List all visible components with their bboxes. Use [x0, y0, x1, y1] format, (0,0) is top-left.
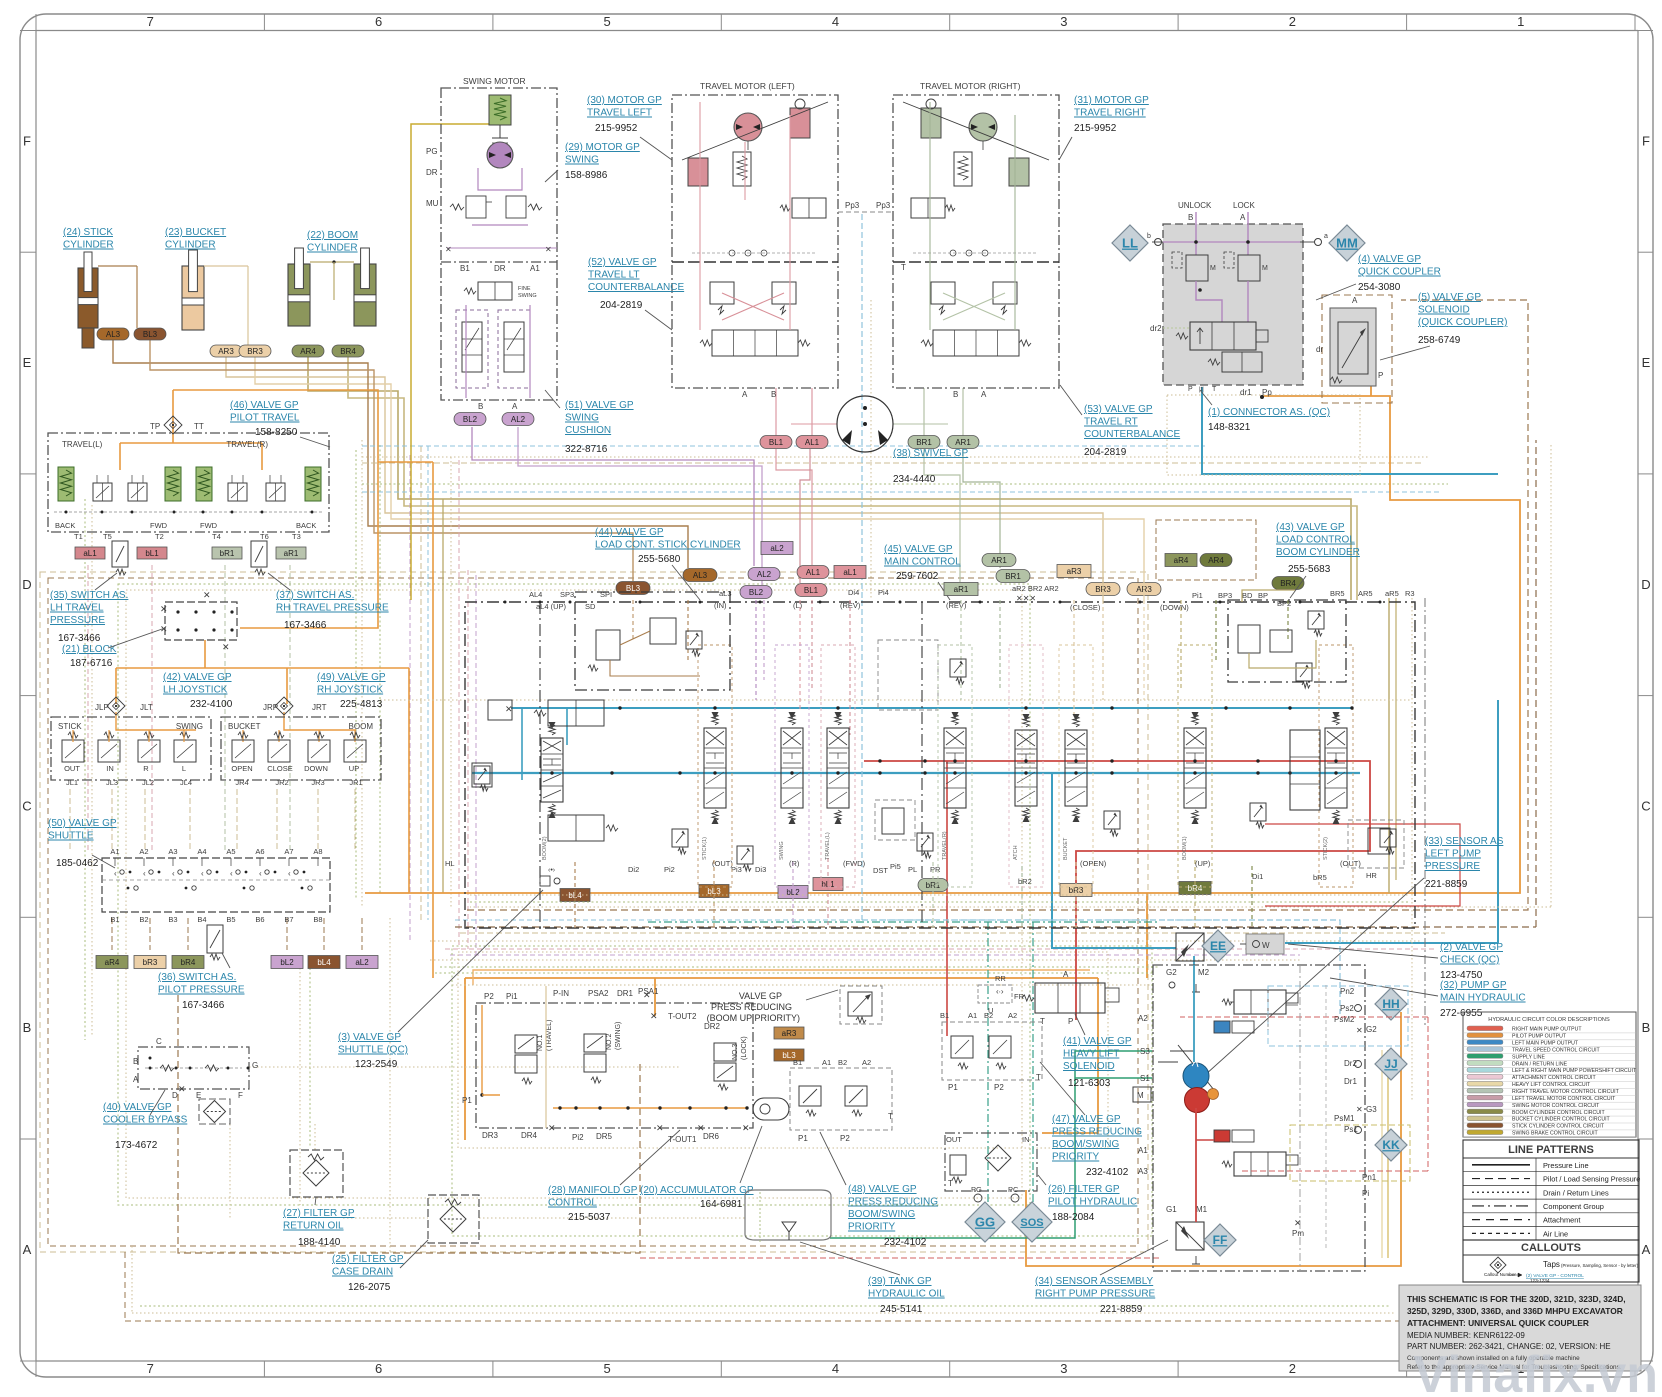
svg-text:✕: ✕ [656, 1123, 664, 1133]
svg-text:(27) FILTER GP: (27) FILTER GP [283, 1208, 355, 1219]
svg-text:RR: RR [995, 974, 1006, 983]
svg-text:F: F [23, 133, 31, 148]
svg-text:204-2819: 204-2819 [600, 300, 643, 311]
svg-text:P: P [1188, 386, 1193, 393]
svg-text:(3) VALVE GP: (3) VALVE GP [338, 1032, 401, 1043]
svg-text:LL: LL [1122, 236, 1138, 251]
svg-text:232-4102: 232-4102 [884, 1237, 927, 1248]
svg-text:DR6: DR6 [703, 1132, 720, 1141]
svg-text:JL2: JL2 [142, 778, 154, 787]
svg-text:Pi2: Pi2 [572, 1133, 584, 1142]
svg-text:TRAVEL SPEED CONTROL CIRCUIT: TRAVEL SPEED CONTROL CIRCUIT [1512, 1047, 1601, 1053]
svg-text:(4) VALVE GP: (4) VALVE GP [1358, 254, 1421, 265]
svg-text:COOLER BYPASS: COOLER BYPASS [103, 1115, 188, 1126]
svg-text:Di3: Di3 [755, 865, 766, 874]
svg-text:DRAIN / RETURN LINE: DRAIN / RETURN LINE [1512, 1061, 1568, 1067]
svg-text:(39) TANK GP: (39) TANK GP [868, 1276, 932, 1287]
svg-text:(IN): (IN) [714, 601, 727, 610]
svg-text:B: B [23, 1020, 32, 1035]
svg-text:272-6955: 272-6955 [1440, 1008, 1483, 1019]
svg-text:aL2: aL2 [355, 958, 369, 967]
svg-text:BR1: BR1 [1005, 572, 1021, 581]
svg-text:BOOM(2): BOOM(2) [542, 836, 548, 860]
svg-text:BOOM: BOOM [349, 722, 374, 731]
svg-text:221-8859: 221-8859 [1425, 879, 1468, 890]
svg-text:BOOM/SWING: BOOM/SWING [848, 1209, 915, 1220]
svg-text:aR1: aR1 [284, 549, 299, 558]
svg-text:PL: PL [908, 865, 917, 874]
svg-text:TRAVEL RIGHT: TRAVEL RIGHT [1074, 108, 1146, 119]
svg-text:RETURN OIL: RETURN OIL [283, 1221, 344, 1232]
svg-text:B3: B3 [168, 915, 177, 924]
svg-text:AL4: AL4 [529, 590, 542, 599]
svg-text:PRIORITY: PRIORITY [1052, 1152, 1100, 1163]
svg-text:aR5: aR5 [1385, 589, 1399, 598]
svg-text:MAIN CONTROL: MAIN CONTROL [884, 557, 961, 568]
svg-text:(21) BLOCK: (21) BLOCK [62, 644, 117, 655]
svg-text:D: D [22, 577, 31, 592]
svg-text:BR4: BR4 [1280, 579, 1296, 588]
svg-text:(QUICK COUPLER): (QUICK COUPLER) [1418, 317, 1507, 328]
svg-text:HR: HR [1366, 871, 1377, 880]
svg-text:b: b [1147, 233, 1151, 240]
svg-text:LEFT MAIN PUMP OUTPUT: LEFT MAIN PUMP OUTPUT [1512, 1040, 1579, 1046]
svg-text:188-2084: 188-2084 [1052, 1212, 1095, 1223]
svg-text:(53) VALVE GP: (53) VALVE GP [1084, 404, 1153, 415]
svg-text:VALVE GP: VALVE GP [739, 991, 782, 1001]
svg-text:Pi: Pi [1362, 1189, 1369, 1198]
svg-text:T-OUT1: T-OUT1 [668, 1135, 697, 1144]
svg-text:(SWING): (SWING) [615, 1022, 622, 1050]
svg-text:G1: G1 [1166, 1205, 1177, 1214]
svg-text:aL1: aL1 [83, 549, 97, 558]
svg-text:6: 6 [375, 1361, 382, 1376]
svg-text:DOWN: DOWN [304, 764, 328, 773]
svg-text:B1: B1 [940, 1011, 949, 1020]
svg-text:258-6749: 258-6749 [1418, 335, 1461, 346]
svg-text:G2: G2 [1366, 1025, 1377, 1034]
svg-text:PILOT HYDRAULIC: PILOT HYDRAULIC [1048, 1197, 1137, 1208]
svg-text:STICK: STICK [58, 722, 82, 731]
svg-text:BP: BP [1258, 591, 1268, 600]
svg-text:BR4: BR4 [340, 347, 356, 356]
svg-text:215-9952: 215-9952 [595, 123, 638, 134]
svg-text:(LOCK): (LOCK) [741, 1036, 748, 1060]
svg-text:6: 6 [375, 14, 382, 29]
svg-text:GG: GG [975, 1215, 995, 1230]
svg-text:(34) SENSOR ASSEMBLY: (34) SENSOR ASSEMBLY [1035, 1276, 1154, 1287]
svg-text:DST: DST [873, 866, 888, 875]
svg-text:C: C [22, 798, 31, 813]
svg-text:dr: dr [1316, 345, 1323, 354]
svg-text:RH JOYSTICK: RH JOYSTICK [317, 685, 383, 696]
svg-text:4: 4 [832, 1361, 839, 1376]
svg-text:BACK: BACK [296, 521, 316, 530]
svg-text:P2: P2 [840, 1134, 850, 1143]
svg-text:BOOM(1): BOOM(1) [1182, 836, 1188, 860]
svg-text:Callout Number: Callout Number [1484, 1272, 1516, 1277]
svg-text:JRP: JRP [263, 703, 278, 712]
svg-text:ATTACHMENT CONTROL CIRCUIT: ATTACHMENT CONTROL CIRCUIT [1512, 1075, 1597, 1081]
svg-text:B: B [1188, 213, 1193, 222]
svg-text:P: P [1378, 371, 1383, 380]
svg-text:T-OUT2: T-OUT2 [668, 1012, 697, 1021]
svg-text:bR2: bR2 [1018, 877, 1032, 886]
svg-text:bL1: bL1 [145, 549, 159, 558]
svg-text:CASE DRAIN: CASE DRAIN [332, 1267, 393, 1278]
svg-text:✕: ✕ [1356, 1105, 1363, 1114]
svg-text:OPEN: OPEN [231, 764, 252, 773]
svg-text:CONTROL: CONTROL [548, 1198, 597, 1209]
svg-text:(36) SWITCH AS.: (36) SWITCH AS. [158, 972, 236, 983]
svg-text:Pn2: Pn2 [1340, 987, 1355, 996]
svg-text:JL3: JL3 [106, 778, 118, 787]
svg-text:PRESS REDUCING: PRESS REDUCING [848, 1197, 938, 1208]
svg-text:M: M [1262, 265, 1268, 272]
svg-text:Ps2: Ps2 [1340, 1004, 1354, 1013]
svg-text:B2: B2 [984, 1011, 993, 1020]
svg-text:204-2819: 204-2819 [1084, 447, 1127, 458]
svg-text:A: A [1063, 970, 1069, 979]
svg-text:MM: MM [1336, 236, 1358, 251]
svg-text:JR2: JR2 [275, 778, 288, 787]
svg-text:(45) VALVE GP: (45) VALVE GP [884, 544, 953, 555]
svg-text:KK: KK [1382, 1138, 1400, 1152]
svg-text:MU: MU [426, 199, 439, 208]
svg-text:Pi1: Pi1 [506, 992, 518, 1001]
svg-text:322-8716: 322-8716 [565, 444, 608, 455]
svg-text:✕✕✕: ✕✕✕ [1016, 594, 1036, 603]
svg-text:aR3: aR3 [782, 1029, 797, 1038]
svg-text:AL3: AL3 [693, 571, 708, 580]
svg-text:(52) VALVE GP: (52) VALVE GP [588, 257, 657, 268]
svg-text:LEFT PUMP: LEFT PUMP [1425, 849, 1481, 860]
svg-text:(46) VALVE GP: (46) VALVE GP [230, 400, 299, 411]
svg-text:‹: ‹ [259, 869, 262, 878]
svg-text:JR1: JR1 [349, 778, 362, 787]
svg-text:Pp3: Pp3 [845, 201, 860, 210]
svg-text:BL1: BL1 [769, 438, 784, 447]
svg-text:TRAVEL(R): TRAVEL(R) [942, 831, 948, 860]
svg-text:Drain / Return Lines: Drain / Return Lines [1543, 1188, 1609, 1197]
svg-text:A6: A6 [255, 847, 264, 856]
svg-text:dr2: dr2 [1150, 324, 1162, 333]
svg-text:P: P [1068, 1017, 1073, 1026]
svg-text:C: C [1641, 798, 1650, 813]
svg-text:215-9952: 215-9952 [1074, 123, 1117, 134]
svg-text:AL3: AL3 [106, 330, 121, 339]
svg-text:(43) VALVE GP: (43) VALVE GP [1276, 522, 1345, 533]
svg-text:A2: A2 [1138, 1014, 1148, 1023]
svg-text:SOS: SOS [1020, 1217, 1043, 1229]
svg-text:G: G [252, 1061, 258, 1070]
svg-text:AL1: AL1 [805, 438, 820, 447]
svg-text:(CLOSE): (CLOSE) [1070, 603, 1101, 612]
svg-text:‹•›: ‹•› [548, 867, 556, 874]
svg-text:UNLOCK: UNLOCK [1178, 201, 1212, 210]
svg-text:(30) MOTOR GP: (30) MOTOR GP [587, 95, 662, 106]
svg-text:(24) STICK: (24) STICK [63, 227, 113, 238]
svg-text:AR1: AR1 [955, 438, 971, 447]
svg-text:255-5680: 255-5680 [638, 554, 681, 565]
svg-text:5: 5 [603, 1361, 610, 1376]
svg-text:PSA2: PSA2 [588, 989, 609, 998]
svg-text:B7: B7 [284, 915, 293, 924]
svg-text:LOCK: LOCK [1233, 201, 1255, 210]
svg-text:G3: G3 [1366, 1105, 1377, 1114]
svg-text:A3: A3 [1138, 1167, 1148, 1176]
svg-text:FF: FF [1213, 1233, 1228, 1247]
svg-text:M2: M2 [1198, 968, 1210, 977]
svg-text:bR3: bR3 [143, 958, 158, 967]
svg-text:(29) MOTOR GP: (29) MOTOR GP [565, 142, 640, 153]
svg-text:AR4: AR4 [300, 347, 316, 356]
svg-text:JLP: JLP [95, 703, 109, 712]
svg-text:‹: ‹ [230, 869, 233, 878]
svg-text:BUCKET: BUCKET [1063, 837, 1069, 860]
svg-text:SWING: SWING [779, 841, 785, 860]
svg-text:5: 5 [603, 14, 610, 29]
svg-text:PRESS REDUCING: PRESS REDUCING [1052, 1127, 1142, 1138]
svg-text:A: A [1642, 1242, 1651, 1257]
svg-text:IN: IN [1022, 1135, 1030, 1144]
svg-text:M1: M1 [1196, 1205, 1208, 1214]
svg-text:(FWD): (FWD) [843, 859, 866, 868]
svg-text:PR: PR [930, 865, 941, 874]
svg-text:F: F [1642, 133, 1650, 148]
svg-text:✕: ✕ [160, 604, 168, 614]
svg-text:TP: TP [150, 422, 160, 431]
svg-text:SOLENOID: SOLENOID [1063, 1061, 1115, 1072]
svg-text:Pp3: Pp3 [876, 201, 891, 210]
svg-text:185-0462: 185-0462 [56, 858, 99, 869]
svg-text:PsM1: PsM1 [1334, 1114, 1355, 1123]
svg-text:bR1: bR1 [220, 549, 235, 558]
svg-text:QUICK COUPLER: QUICK COUPLER [1358, 267, 1441, 278]
svg-text:(20) ACCUMULATOR GP: (20) ACCUMULATOR GP [640, 1185, 754, 1196]
svg-text:B8: B8 [313, 915, 322, 924]
svg-text:JJ: JJ [1384, 1057, 1397, 1071]
svg-text:✕: ✕ [742, 1123, 750, 1133]
svg-text:P1: P1 [948, 1083, 958, 1092]
svg-text:A1: A1 [822, 1058, 831, 1067]
svg-text:SWING MOTOR CONTROL CIRCUIT: SWING MOTOR CONTROL CIRCUIT [1512, 1103, 1600, 1109]
svg-text:(28) MANIFOLD GP: (28) MANIFOLD GP [548, 1185, 638, 1196]
svg-text:PILOT PUMP OUTPUT: PILOT PUMP OUTPUT [1512, 1034, 1567, 1040]
svg-text:A: A [512, 402, 518, 411]
svg-text:225-4813: 225-4813 [340, 699, 383, 710]
svg-text:bR5: bR5 [1313, 873, 1327, 882]
svg-text:P2: P2 [994, 1083, 1004, 1092]
svg-text:OUT: OUT [64, 764, 80, 773]
svg-text:PsM2: PsM2 [1334, 1015, 1355, 1024]
svg-text:(38) SWIVEL GP: (38) SWIVEL GP [893, 448, 969, 459]
svg-text:SWING: SWING [518, 293, 537, 299]
svg-text:(TRAVEL): (TRAVEL) [546, 1020, 553, 1051]
svg-text:TT: TT [194, 422, 204, 431]
svg-text:A1: A1 [530, 264, 540, 273]
svg-text:Component Group: Component Group [1543, 1202, 1604, 1211]
svg-text:(5) VALVE GP: (5) VALVE GP [1418, 292, 1481, 303]
svg-text:DR3: DR3 [482, 1131, 499, 1140]
svg-text:✕: ✕ [697, 1123, 705, 1133]
svg-text:P1: P1 [798, 1134, 808, 1143]
svg-text:(47) VALVE GP: (47) VALVE GP [1052, 1114, 1121, 1125]
svg-text:‹∙›: ‹∙› [996, 987, 1004, 996]
svg-text:7: 7 [147, 1361, 154, 1376]
svg-text:AL1: AL1 [806, 568, 821, 577]
svg-text:(33) SENSOR AS: (33) SENSOR AS [1425, 836, 1504, 847]
svg-text:B1: B1 [460, 264, 470, 273]
svg-text:A: A [742, 390, 748, 399]
svg-text:126-2075: 126-2075 [348, 1282, 391, 1293]
svg-text:CYLINDER: CYLINDER [63, 240, 114, 251]
svg-text:C: C [156, 1037, 162, 1046]
svg-text:(REV): (REV) [946, 601, 967, 610]
svg-text:DR: DR [426, 168, 438, 177]
svg-text:aL1: aL1 [843, 568, 857, 577]
svg-text:M: M [1210, 265, 1216, 272]
svg-text:JR3: JR3 [311, 778, 324, 787]
svg-text:187-6716: 187-6716 [70, 658, 113, 669]
svg-text:A2: A2 [139, 847, 148, 856]
svg-text:A3: A3 [168, 847, 177, 856]
svg-text:(BOOM UP PRIORITY): (BOOM UP PRIORITY) [707, 1013, 800, 1023]
svg-text:A2: A2 [862, 1058, 871, 1067]
svg-text:✕: ✕ [548, 1123, 556, 1133]
svg-text:M: M [1137, 1091, 1144, 1100]
svg-text:(Pressure, Sampling, Sensor -: (Pressure, Sampling, Sensor - by letter) [1561, 1263, 1639, 1268]
svg-text:188-4140: 188-4140 [298, 1237, 341, 1248]
svg-text:JRT: JRT [312, 703, 327, 712]
svg-text:A8: A8 [313, 847, 322, 856]
svg-text:B: B [133, 1057, 138, 1066]
svg-text:A: A [981, 390, 987, 399]
svg-text:Pm: Pm [1292, 1229, 1304, 1238]
svg-text:(DOWN): (DOWN) [1160, 603, 1189, 612]
svg-text:A4: A4 [197, 847, 206, 856]
svg-text:MAIN HYDRAULIC: MAIN HYDRAULIC [1440, 993, 1526, 1004]
svg-text:T: T [901, 263, 906, 272]
svg-text:B: B [953, 390, 958, 399]
svg-text:121-6303: 121-6303 [1068, 1078, 1111, 1089]
svg-text:234-4440: 234-4440 [893, 474, 936, 485]
svg-text:aR1: aR1 [954, 585, 969, 594]
svg-text:TRAVEL RT: TRAVEL RT [1084, 417, 1138, 428]
svg-text:BOOM/SWING: BOOM/SWING [1052, 1139, 1119, 1150]
svg-text:TRAVEL MOTOR (RIGHT): TRAVEL MOTOR (RIGHT) [920, 81, 1021, 91]
svg-text:158-8986: 158-8986 [565, 170, 608, 181]
svg-text:AR1: AR1 [991, 556, 1007, 565]
svg-text:HEAVY LIFT CONTROL CIRCUIT: HEAVY LIFT CONTROL CIRCUIT [1512, 1082, 1591, 1088]
svg-text:JL1: JL1 [66, 778, 78, 787]
svg-text:PG: PG [426, 147, 438, 156]
svg-text:SWING: SWING [565, 413, 599, 424]
svg-text:2: 2 [1289, 1361, 1296, 1376]
svg-text:Dr1: Dr1 [1344, 1077, 1357, 1086]
svg-text:BL2: BL2 [749, 588, 764, 597]
svg-text:a: a [1324, 233, 1328, 240]
svg-text:123-2549: 123-2549 [355, 1059, 398, 1070]
svg-text:S3: S3 [1140, 1047, 1150, 1056]
svg-text:PRESSURE: PRESSURE [50, 615, 105, 626]
svg-text:167-3466: 167-3466 [182, 1000, 225, 1011]
svg-text:COUNTERBALANCE: COUNTERBALANCE [588, 282, 684, 293]
svg-text:(32) PUMP GP: (32) PUMP GP [1440, 980, 1507, 991]
svg-text:(48) VALVE GP: (48) VALVE GP [848, 1184, 917, 1195]
svg-text:TRAVEL LT: TRAVEL LT [588, 270, 640, 281]
svg-text:DR2: DR2 [704, 1022, 721, 1031]
svg-text:A: A [133, 1075, 139, 1084]
svg-text:STICK(1): STICK(1) [702, 837, 708, 860]
svg-text:Attachment: Attachment [1543, 1216, 1580, 1225]
svg-text:(35) SWITCH AS.: (35) SWITCH AS. [50, 590, 128, 601]
svg-text:BOOM CYLINDER: BOOM CYLINDER [1276, 547, 1360, 558]
svg-text:Vinafix.vn: Vinafix.vn [1413, 1346, 1658, 1392]
svg-text:Pi5: Pi5 [890, 862, 901, 871]
svg-text:RIGHT MAIN PUMP OUTPUT: RIGHT MAIN PUMP OUTPUT [1512, 1027, 1582, 1033]
svg-text:SHUTTLE (QC): SHUTTLE (QC) [338, 1045, 408, 1056]
svg-text:✕: ✕ [545, 245, 552, 254]
svg-text:173-4672: 173-4672 [115, 1140, 158, 1151]
svg-text:T: T [948, 1179, 953, 1188]
svg-text:UP: UP [349, 764, 359, 773]
svg-text:T1: T1 [74, 532, 83, 541]
svg-text:(22) BOOM: (22) BOOM [307, 230, 358, 241]
svg-text:P-IN: P-IN [553, 989, 569, 998]
svg-text:(OUT): (OUT) [1340, 859, 1361, 868]
svg-text:T5: T5 [103, 532, 112, 541]
svg-text:CLOSE: CLOSE [267, 764, 292, 773]
svg-text:Di4: Di4 [848, 588, 859, 597]
svg-text:PC: PC [1008, 1185, 1019, 1194]
svg-text:A2: A2 [1008, 1011, 1017, 1020]
svg-text:(1) CONNECTOR AS. (QC): (1) CONNECTOR AS. (QC) [1208, 407, 1330, 418]
svg-text:‹: ‹ [143, 869, 146, 878]
svg-text:3: 3 [1060, 14, 1067, 29]
svg-text:FWD: FWD [150, 521, 168, 530]
svg-text:PRESSURE: PRESSURE [1425, 861, 1480, 872]
svg-text:BUCKET CYLINDER CONTROL CIRCUI: BUCKET CYLINDER CONTROL CIRCUIT [1512, 1117, 1611, 1123]
svg-text:BL3: BL3 [143, 330, 158, 339]
svg-text:aL2: aL2 [770, 544, 784, 553]
svg-text:RH TRAVEL PRESSURE: RH TRAVEL PRESSURE [276, 603, 389, 614]
svg-text:E: E [23, 355, 32, 370]
svg-text:Pi4: Pi4 [878, 588, 889, 597]
svg-text:(40) VALVE GP: (40) VALVE GP [103, 1102, 172, 1113]
svg-text:✕: ✕ [505, 704, 513, 714]
svg-text:F: F [238, 1091, 243, 1100]
svg-text:AR3: AR3 [218, 347, 234, 356]
svg-text:DR1: DR1 [617, 989, 634, 998]
svg-text:LINE PATTERNS: LINE PATTERNS [1508, 1144, 1594, 1156]
svg-text:MEDIA NUMBER: KENR6122-09: MEDIA NUMBER: KENR6122-09 [1407, 1331, 1525, 1340]
svg-text:T6: T6 [260, 532, 269, 541]
svg-text:BP3: BP3 [1218, 591, 1232, 600]
svg-text:232-4102: 232-4102 [1086, 1167, 1129, 1178]
svg-text:2: 2 [1289, 14, 1296, 29]
svg-text:(25) FILTER GP: (25) FILTER GP [332, 1254, 404, 1265]
svg-text:232-4100: 232-4100 [190, 699, 233, 710]
svg-text:259-7602: 259-7602 [896, 571, 939, 582]
svg-text:bR4: bR4 [181, 958, 196, 967]
svg-text:JLT: JLT [140, 703, 153, 712]
svg-text:BR3: BR3 [247, 347, 263, 356]
svg-text:BL2: BL2 [463, 415, 478, 424]
svg-text:G2: G2 [1166, 968, 1177, 977]
svg-text:Pi3: Pi3 [731, 865, 742, 874]
svg-text:TRAVEL LEFT: TRAVEL LEFT [587, 108, 652, 119]
